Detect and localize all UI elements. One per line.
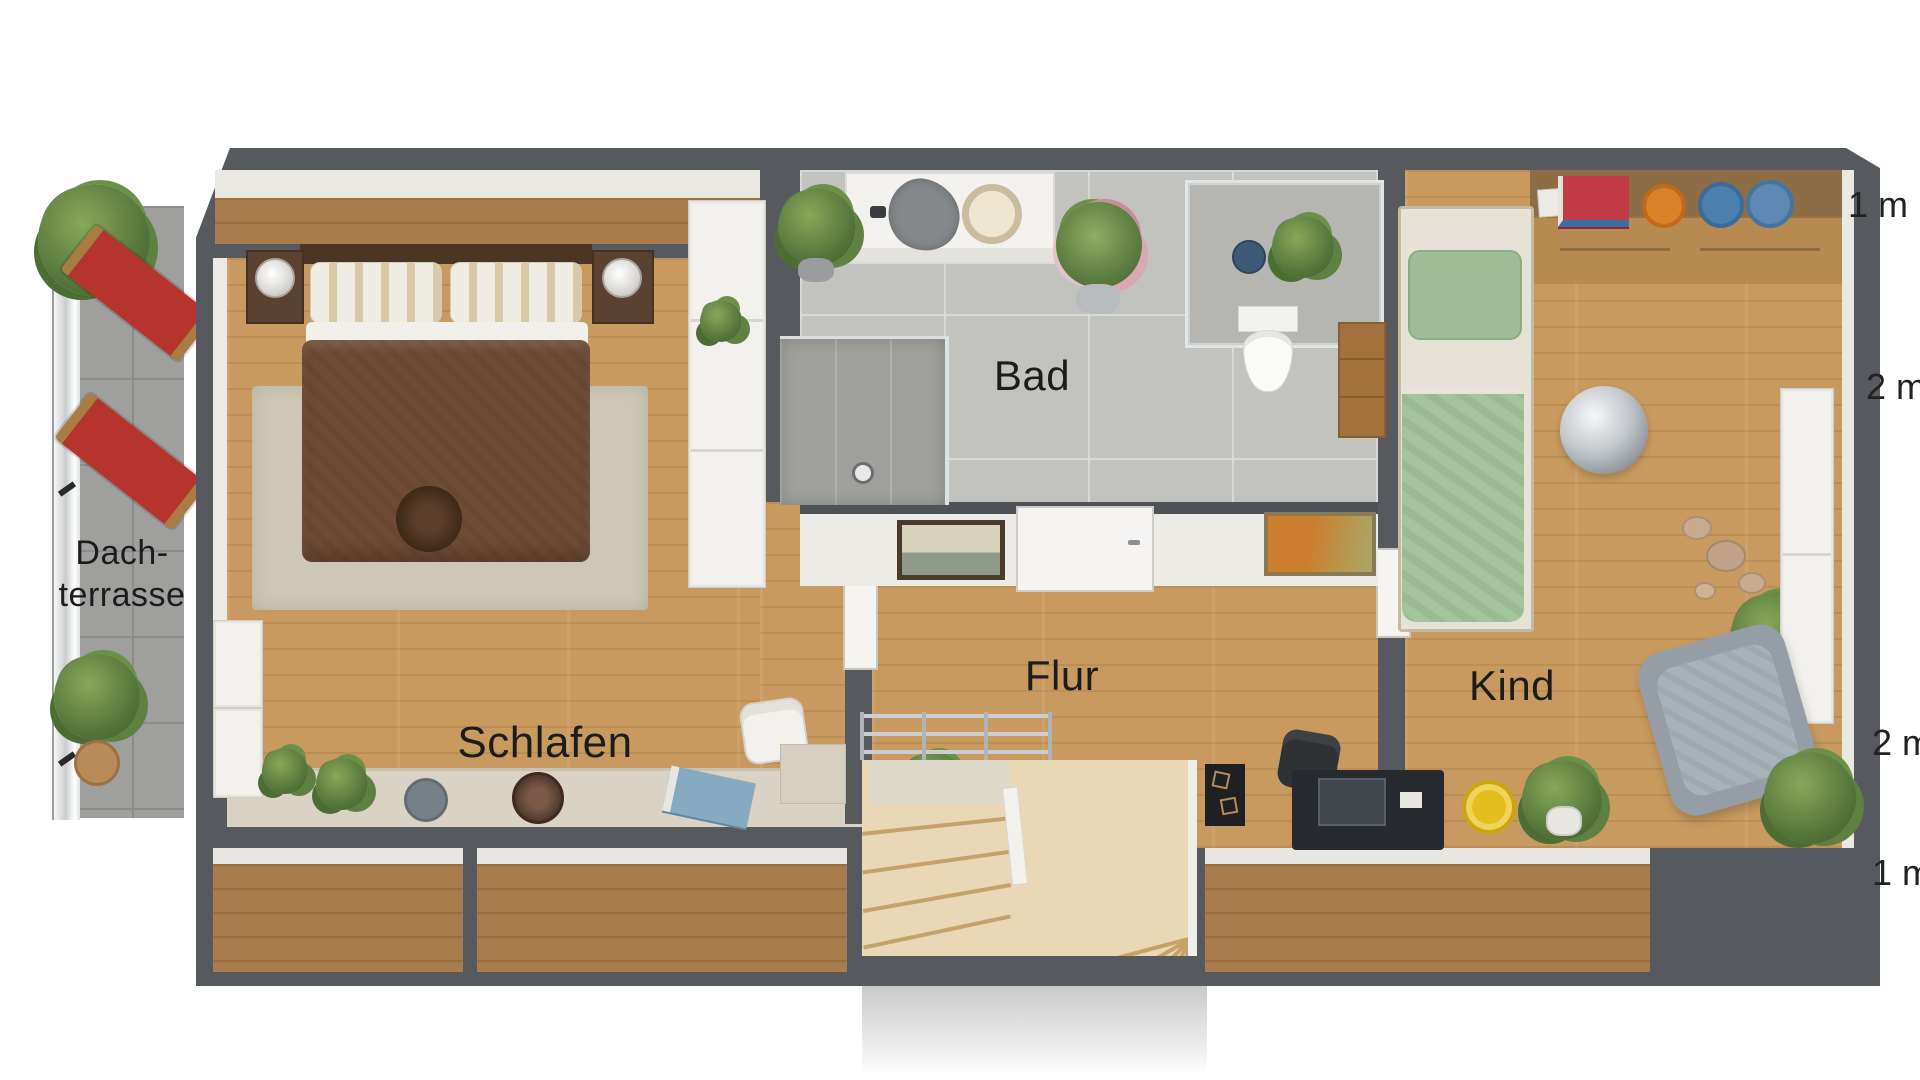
bedroom-dresser [213, 620, 263, 708]
shower-plant [1272, 216, 1334, 278]
kids-desk-mat [1205, 764, 1245, 826]
eaves-compartment-right [1205, 848, 1650, 972]
kids-bed-duvet [1402, 390, 1524, 622]
toilet-tank [1238, 306, 1298, 332]
framed-picture [1264, 512, 1376, 576]
toy-pebble [1706, 540, 1746, 572]
drawer-handle-icon [1560, 248, 1670, 251]
measurement-label: 2 m [1872, 722, 1920, 764]
bedroom-eaves-floor [215, 198, 760, 244]
bathroom-plant-pot [798, 258, 834, 282]
ledge-bowl-dark [512, 772, 564, 824]
kids-plant-pot [1546, 806, 1582, 836]
mini-frame-icon [1212, 771, 1231, 790]
kids-bed-pillow [1408, 250, 1522, 340]
bedroom-wardrobe [688, 200, 766, 588]
bowl-blue-icon [1698, 182, 1744, 228]
framed-picture [897, 520, 1005, 580]
stair-step [862, 850, 1011, 875]
shower-drain-icon [852, 462, 874, 484]
bathroom-plant-left [778, 188, 856, 266]
room-label-kind: Kind [1469, 662, 1555, 710]
vanity-basket [962, 184, 1022, 244]
toy-pebble [1682, 516, 1712, 540]
railing-post [984, 712, 988, 760]
stair-newel [1003, 788, 1027, 885]
railing-post [922, 712, 926, 760]
stair-step [863, 914, 1011, 949]
railing-bar [860, 714, 1052, 718]
bathroom-flower-plant [1056, 202, 1142, 288]
measurement-label: 2 m [1866, 366, 1920, 408]
terrace-plant-bottom [54, 654, 140, 740]
bed-pillow [450, 262, 582, 324]
knit-throw [396, 486, 462, 552]
vanity-soap-icon [870, 206, 886, 218]
kids-desk [1292, 770, 1444, 850]
room-label-schlafen: Schlafen [457, 718, 632, 768]
eaves-compartment-mid [477, 848, 847, 972]
roof-terrace: Dach- terrasse [52, 204, 186, 820]
toy-pebble [1738, 572, 1766, 594]
bedroom-eaves-wall [215, 170, 760, 198]
railing-bar [860, 750, 1052, 754]
room-label-bad: Bad [994, 352, 1070, 400]
terrace-label-line2: terrasse [59, 576, 186, 615]
door-handle-icon [1128, 540, 1140, 545]
wardrobe-plant [700, 300, 742, 342]
bathroom-wood-cabinet [1338, 322, 1386, 438]
measurement-label: 1 m [1848, 184, 1908, 226]
measurement-label: 1 m [1872, 852, 1920, 894]
bedroom-dresser [213, 708, 263, 798]
mini-frame-icon [1220, 797, 1239, 816]
bowl-blue-icon [1746, 180, 1794, 228]
bowl-orange-icon [1642, 184, 1686, 228]
stairwell-wall [870, 760, 1010, 804]
bathroom-door [1016, 506, 1154, 592]
bedroom-door [843, 584, 878, 670]
stair-railing [860, 712, 1052, 760]
drawer-handle-icon [1700, 248, 1820, 251]
stairwell [862, 760, 1197, 956]
bed-headboard [300, 244, 592, 264]
stair-step [862, 816, 1012, 836]
ledge-bowl-gray [404, 778, 448, 822]
stair-landing-below [862, 986, 1207, 1076]
ledge-plant [262, 748, 308, 794]
toy-plate-yellow [1462, 780, 1516, 834]
mirror-ball-lamp [1560, 386, 1648, 474]
eaves-compartment-left [213, 848, 463, 972]
terrace-label-line1: Dach- [75, 534, 168, 573]
flower-pot [1076, 284, 1120, 314]
floor-plan-canvas: Dach- terrasse [0, 0, 1920, 1080]
stairwell-wall-right [1188, 760, 1197, 956]
sideboard-books [1558, 176, 1629, 227]
ledge-plant [316, 758, 368, 810]
room-label-flur: Flur [1025, 652, 1099, 700]
kids-plant-far-right [1764, 752, 1856, 844]
bed-pillow [310, 262, 442, 324]
paper-icon [1400, 792, 1422, 808]
bedside-lamp-icon [255, 258, 295, 298]
terrace-pot [74, 740, 120, 786]
bedroom-desk [780, 744, 846, 804]
railing-post [1048, 712, 1052, 760]
shower-stool-icon [1232, 240, 1266, 274]
stair-step [863, 883, 1011, 913]
railing-bar [860, 732, 1052, 736]
railing-post [860, 712, 864, 760]
bedside-lamp-icon [602, 258, 642, 298]
computer-screen-icon [1318, 778, 1386, 826]
toy-pebble [1694, 582, 1716, 600]
